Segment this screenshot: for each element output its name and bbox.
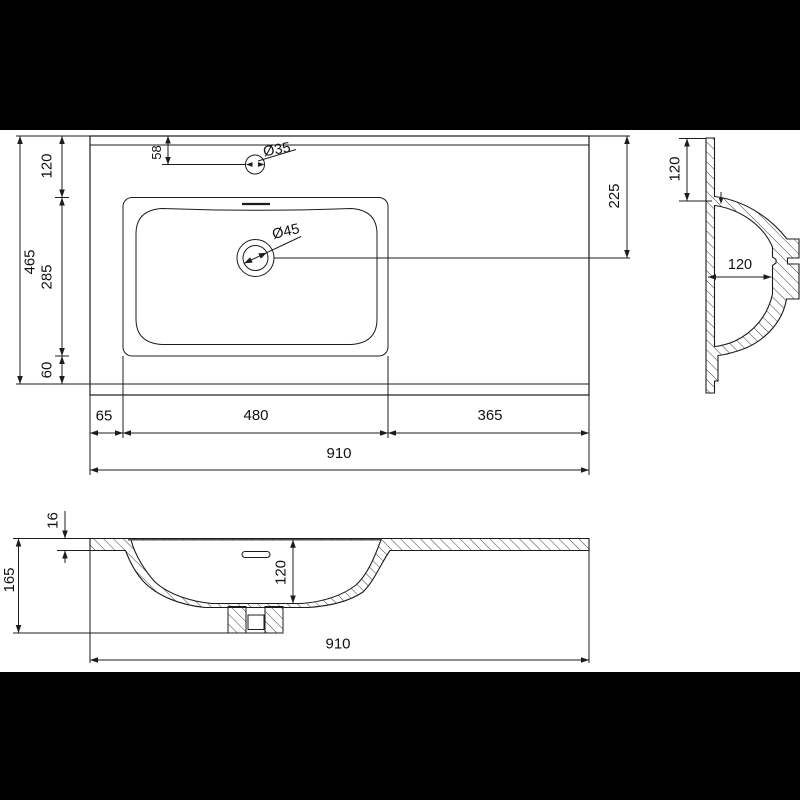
plan-dim-depth-total: 465 bbox=[22, 249, 39, 274]
plan-dim-basin-width: 480 bbox=[243, 407, 268, 424]
technical-drawing: Ø35 58 Ø45 465 120 285 60 bbox=[0, 0, 800, 800]
plan-dim-back-offset: 120 bbox=[39, 153, 56, 178]
letterbox-bottom bbox=[0, 672, 800, 800]
plan-dim-drain-offset-right: 225 bbox=[606, 183, 623, 208]
screenshot-canvas: Ø35 58 Ø45 465 120 285 60 bbox=[0, 0, 800, 800]
plan-dim-right-offset: 365 bbox=[477, 407, 502, 424]
front-dim-total-height: 165 bbox=[1, 567, 18, 592]
plan-dim-front-offset: 60 bbox=[39, 362, 56, 379]
side-dim-bowl-inner-width: 120 bbox=[728, 257, 752, 273]
front-dim-bowl-depth: 120 bbox=[273, 560, 290, 585]
trap-right-wall bbox=[265, 607, 283, 634]
plan-dim-faucet-offset: 58 bbox=[149, 145, 164, 159]
side-dim-rim-height: 120 bbox=[667, 156, 684, 181]
front-dim-top-thickness: 16 bbox=[45, 512, 62, 529]
letterbox-top bbox=[0, 0, 800, 130]
drain-outlet bbox=[248, 615, 264, 630]
plan-dim-basin-depth: 285 bbox=[39, 264, 56, 289]
plan-dim-left-offset: 65 bbox=[96, 408, 113, 425]
plan-dim-total-width: 910 bbox=[326, 445, 351, 462]
overflow-slot bbox=[242, 552, 270, 558]
front-dim-total-width: 910 bbox=[325, 636, 350, 653]
drawing-paper bbox=[0, 130, 800, 672]
trap-left-wall bbox=[228, 607, 246, 634]
